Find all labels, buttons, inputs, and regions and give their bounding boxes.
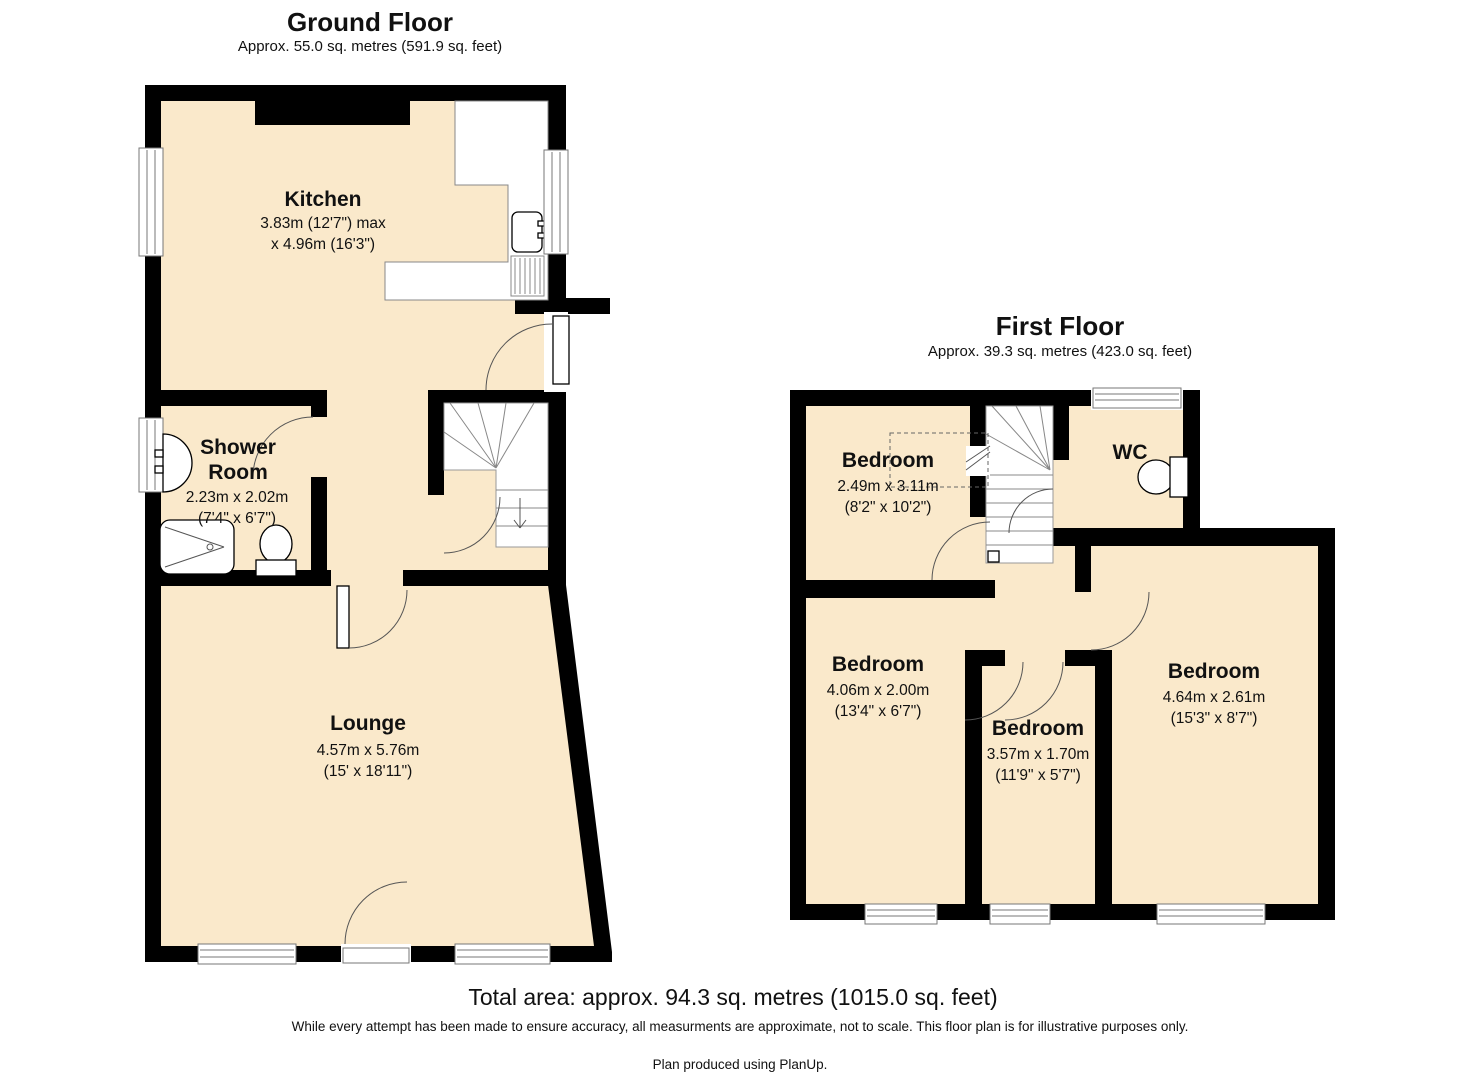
shower-room-size-ft: (7'4" x 6'7") (198, 509, 276, 529)
bedroom-top-size-m: 2.49m x 3.11m (837, 477, 938, 497)
bedroom-right-size-m: 4.64m x 2.61m (1163, 688, 1266, 708)
shower-room-label-1: Shower (200, 436, 276, 460)
credit-text: Plan produced using PlanUp. (653, 1056, 828, 1074)
bedroom-middle-label: Bedroom (992, 717, 1084, 741)
bedroom-right-size-ft: (15'3" x 8'7") (1171, 709, 1258, 729)
total-area-text: Total area: approx. 94.3 sq. metres (101… (468, 983, 997, 1013)
lounge-label: Lounge (330, 712, 406, 736)
shower-room-label-2: Room (208, 461, 268, 485)
bedroom-top-size-ft: (8'2" x 10'2") (845, 498, 932, 518)
bedroom-top-label: Bedroom (842, 449, 934, 473)
floor-plan-page: Ground Floor Approx. 55.0 sq. metres (59… (0, 0, 1484, 1080)
bedroom-left-size-ft: (13'4" x 6'7") (835, 702, 922, 722)
kitchen-size-2: x 4.96m (16'3") (271, 235, 375, 255)
shower-room-size-m: 2.23m x 2.02m (186, 488, 289, 508)
bedroom-right-label: Bedroom (1168, 660, 1260, 684)
ground-floor-title: Ground Floor (287, 6, 453, 40)
ground-floor-area: Approx. 55.0 sq. metres (591.9 sq. feet) (238, 37, 502, 57)
first-floor-area: Approx. 39.3 sq. metres (423.0 sq. feet) (928, 342, 1192, 362)
bedroom-left-size-m: 4.06m x 2.00m (827, 681, 930, 701)
bedroom-middle-size-m: 3.57m x 1.70m (987, 745, 1090, 765)
kitchen-label: Kitchen (284, 188, 361, 212)
lounge-size-ft: (15' x 18'11") (324, 762, 413, 782)
kitchen-size-1: 3.83m (12'7") max (260, 214, 386, 234)
bedroom-left-label: Bedroom (832, 653, 924, 677)
first-floor-title: First Floor (996, 310, 1125, 344)
bedroom-middle-size-ft: (11'9" x 5'7") (995, 766, 1081, 786)
wc-label: WC (1113, 441, 1148, 465)
lounge-size-m: 4.57m x 5.76m (317, 741, 420, 761)
disclaimer-text: While every attempt has been made to ens… (260, 1018, 1220, 1036)
